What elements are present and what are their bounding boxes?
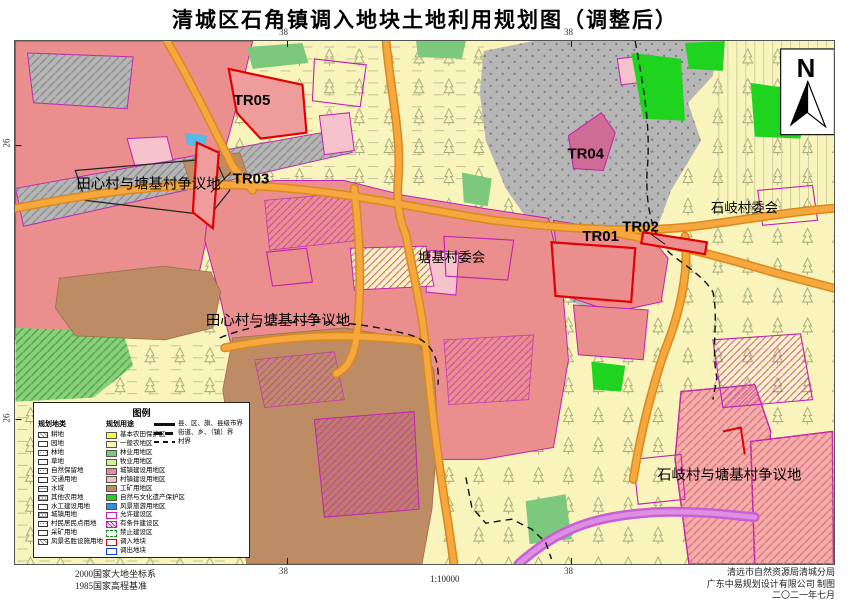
legend-item: 林地 <box>38 449 103 458</box>
legend-swatch <box>38 459 48 465</box>
label-tr05: TR05 <box>234 92 271 109</box>
footer-datum: 2000国家大地坐标系 1985国家高程基准 <box>75 569 156 592</box>
legend-swatch <box>154 432 175 435</box>
legend-item: 村民居民点用地 <box>38 520 103 529</box>
credit-line-2: 广东中易规划设计有限公司 制图 <box>707 579 835 591</box>
legend-label: 自然与文化遗产保护区 <box>120 494 185 502</box>
page-title: 清城区石角镇调入地块土地利用规划图（调整后） <box>0 4 850 34</box>
legend-swatch <box>38 495 48 501</box>
label-dispute-shiqi-bottom: 石岐村与塘基村争议地 <box>657 465 801 483</box>
label-tr04: TR04 <box>567 146 604 163</box>
legend-item: 其他农用地 <box>38 493 103 502</box>
legend-line-list: 县、区、旗、县级市界街道、乡、（镇）界村界 <box>154 420 243 447</box>
legend-label: 工矿用地区 <box>120 485 153 493</box>
legend-label: 允许建设区 <box>120 511 153 519</box>
legend-swatch <box>38 450 48 456</box>
legend-label: 水域 <box>51 485 64 493</box>
label-tangji-committee: 塘基村委会 <box>418 249 485 265</box>
grid-coord-left-upper: 26 <box>2 139 12 148</box>
legend-item: 耕地 <box>38 431 103 440</box>
legend-label: 村镇建设用地区 <box>120 476 166 484</box>
legend-label: 城镇用地 <box>51 511 77 519</box>
legend-item: 城镇用地 <box>38 511 103 520</box>
legend-item: 水工建设用地 <box>38 502 103 511</box>
legend-item: 城镇建设用地区 <box>106 467 185 476</box>
legend-item: 街道、乡、（镇）界 <box>154 429 243 438</box>
legend-swatch <box>106 485 117 492</box>
legend-swatch <box>38 441 48 447</box>
legend-swatch <box>106 512 117 519</box>
legend-item: 调出地块 <box>106 547 185 556</box>
legend-item: 牧业用地区 <box>106 458 185 467</box>
legend-label: 调入地块 <box>120 538 146 546</box>
datum-line-2: 1985国家高程基准 <box>75 581 156 593</box>
label-dispute-tianxin-mid: 田心村与塘基村争议地 <box>206 311 350 329</box>
grid-coord-top-left: 38 <box>279 27 288 37</box>
legend-landclass-header: 规划地类 <box>38 419 66 429</box>
legend-label: 其他农用地 <box>51 494 84 502</box>
legend-item: 自然与文化遗产保护区 <box>106 493 185 502</box>
legend-swatch <box>154 441 175 443</box>
legend-swatch <box>106 441 117 448</box>
legend-swatch <box>38 521 48 527</box>
legend-item: 村镇建设用地区 <box>106 475 185 484</box>
legend-label: 自然保留地 <box>51 467 84 475</box>
legend-label: 城镇建设用地区 <box>120 467 166 475</box>
legend-item: 村界 <box>154 438 243 447</box>
legend-swatch <box>106 548 117 555</box>
brown-parcel-hatch <box>314 412 419 518</box>
legend-label: 林地 <box>51 449 64 457</box>
legend-item: 调入地块 <box>106 538 185 547</box>
legend-label: 风景名胜设施用地 <box>51 538 103 546</box>
legend-item: 风景旅游用地区 <box>106 502 185 511</box>
legend-item: 林业用地区 <box>106 449 185 458</box>
legend-item: 交通用地 <box>38 475 103 484</box>
grid-coord-bottom-left: 38 <box>279 566 288 576</box>
legend-label: 街道、乡、（镇）界 <box>178 429 233 437</box>
legend-label: 林业用地区 <box>120 449 153 457</box>
label-tr03: TR03 <box>233 170 270 187</box>
legend-landclass-list: 耕地园地林地草地自然保留地交通用地水域其他农用地水工建设用地城镇用地村民居民点用… <box>38 431 103 547</box>
legend-label: 耕地 <box>51 431 64 439</box>
import-parcel-tr01 <box>552 242 636 302</box>
legend-item: 禁止建设区 <box>106 529 185 538</box>
legend-swatch <box>106 450 117 457</box>
legend-swatch <box>106 503 117 510</box>
legend-swatch <box>106 432 117 439</box>
legend-title: 图例 <box>34 406 249 419</box>
label-tr02: TR02 <box>622 218 659 235</box>
label-tr01: TR01 <box>582 228 619 245</box>
legend-item: 有条件建设区 <box>106 520 185 529</box>
legend-item: 风景名胜设施用地 <box>38 538 103 547</box>
legend-swatch <box>106 468 117 475</box>
legend-swatch <box>38 432 48 438</box>
legend-swatch <box>106 476 117 483</box>
planning-map-page: 清城区石角镇调入地块土地利用规划图（调整后） 38 38 38 38 26 26 <box>0 0 850 601</box>
legend-use-header: 规划用途 <box>106 419 134 429</box>
brown-hatch-parcel <box>255 352 345 408</box>
legend-swatch <box>154 423 175 426</box>
legend-label: 采矿用地 <box>51 529 77 537</box>
legend-swatch <box>38 539 48 545</box>
legend-label: 村界 <box>178 438 191 446</box>
legend-box: 图例 规划地类 规划用途 耕地园地林地草地自然保留地交通用地水域其他农用地水工建… <box>33 402 250 558</box>
legend-label: 牧业用地区 <box>120 458 153 466</box>
legend-label: 调出地块 <box>120 547 146 555</box>
legend-item: 草地 <box>38 458 103 467</box>
label-shiqi-committee: 石岐村委会 <box>711 200 778 215</box>
legend-item: 园地 <box>38 440 103 449</box>
north-arrow-n: N <box>797 55 816 83</box>
legend-label: 有条件建设区 <box>120 520 159 528</box>
legend-item: 采矿用地 <box>38 529 103 538</box>
legend-swatch <box>38 486 48 492</box>
legend-swatch <box>106 494 117 501</box>
legend-swatch <box>38 512 48 518</box>
datum-line-1: 2000国家大地坐标系 <box>75 569 156 581</box>
legend-label: 交通用地 <box>51 476 77 484</box>
legend-use-list: 基本农田保护区一般农地区林业用地区牧业用地区城镇建设用地区村镇建设用地区工矿用地… <box>106 431 185 555</box>
legend-swatch <box>106 459 117 466</box>
map-scale: 1:10000 <box>430 574 460 586</box>
legend-label: 县、区、旗、县级市界 <box>178 420 243 428</box>
legend-label: 禁止建设区 <box>120 529 153 537</box>
legend-item: 县、区、旗、县级市界 <box>154 420 243 429</box>
legend-swatch <box>106 521 117 528</box>
legend-swatch <box>38 477 48 483</box>
legend-swatch <box>106 530 117 537</box>
grid-coord-top-right: 38 <box>564 27 573 37</box>
legend-item: 工矿用地区 <box>106 484 185 493</box>
legend-swatch <box>38 530 48 536</box>
legend-item: 允许建设区 <box>106 511 185 520</box>
north-arrow: N <box>781 49 834 135</box>
label-dispute-tianxin-top: 田心村与塘基村争议地 <box>76 174 220 192</box>
credit-line-1: 清远市自然资源局清城分局 <box>707 567 835 579</box>
legend-swatch <box>38 504 48 510</box>
grid-coord-bottom-right: 38 <box>564 566 573 576</box>
legend-item: 自然保留地 <box>38 467 103 476</box>
grid-coord-left-lower: 26 <box>2 414 12 423</box>
footer-credits: 清远市自然资源局清城分局 广东中易规划设计有限公司 制图 二〇二一年七月 <box>707 567 835 601</box>
legend-label: 村民居民点用地 <box>51 520 97 528</box>
legend-label: 风景旅游用地区 <box>120 503 166 511</box>
legend-swatch <box>38 468 48 474</box>
legend-item: 水域 <box>38 484 103 493</box>
credit-line-3: 二〇二一年七月 <box>707 590 835 601</box>
legend-swatch <box>106 539 117 546</box>
legend-label: 园地 <box>51 440 64 448</box>
legend-label: 一般农地区 <box>120 440 153 448</box>
legend-label: 水工建设用地 <box>51 503 90 511</box>
legend-label: 草地 <box>51 458 64 466</box>
